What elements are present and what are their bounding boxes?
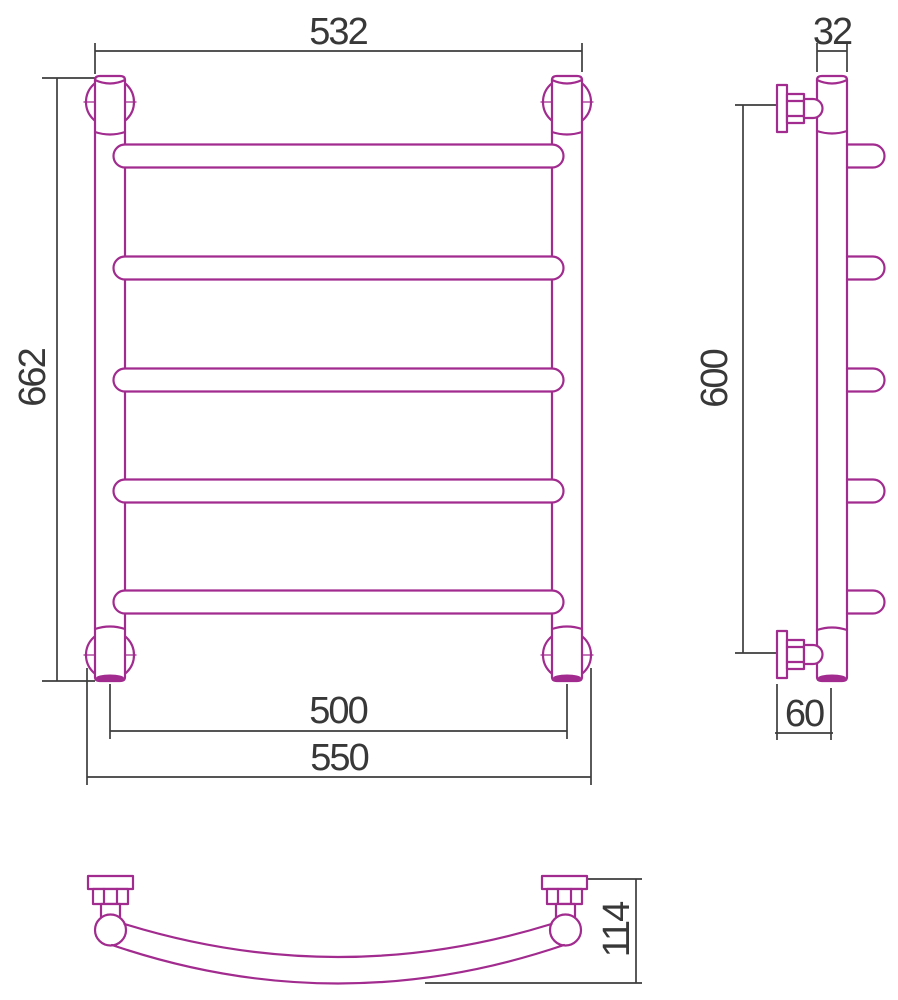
bar-stub (847, 369, 885, 392)
bar-stub (847, 145, 885, 168)
wall-flange (88, 876, 133, 889)
towel-rail-drawing: 532 662 500 550 32 600 60 114 (0, 0, 898, 1000)
dim-label-550: 550 (310, 737, 368, 779)
post-section-circle (550, 915, 581, 946)
bar-stub (847, 480, 885, 503)
dim-label-60: 60 (785, 693, 824, 735)
plan-curved-bar (112, 924, 564, 984)
dim-side-mount-spacing (735, 105, 779, 653)
rail-bar (114, 369, 564, 392)
post-bottom-cap (96, 675, 124, 682)
dim-label-600: 600 (694, 349, 736, 407)
side-tube (817, 76, 847, 682)
dim-label-532: 532 (309, 11, 367, 53)
dim-label-500: 500 (309, 690, 367, 732)
rail-bar (114, 591, 564, 614)
side-bottom-bracket (777, 631, 823, 678)
bracket-stem (804, 645, 823, 664)
wall-flange (777, 85, 787, 132)
plan-left-mount (88, 876, 133, 946)
plan-right-mount (542, 876, 587, 946)
wall-flange (542, 876, 587, 889)
rail-bar (114, 257, 564, 280)
hex-nut (787, 640, 804, 669)
hex-nut (547, 889, 582, 904)
hex-nut (93, 889, 128, 904)
rail-bar (114, 145, 564, 168)
curved-bar-bottom-edge (112, 945, 564, 984)
bar-stub (847, 257, 885, 280)
tube-bottom-cap (818, 675, 846, 682)
post-bottom-cap (553, 675, 581, 682)
side-bar-stubs (847, 145, 885, 614)
dimension-lines (42, 43, 847, 983)
post-section-circle (95, 915, 126, 946)
side-top-bracket (777, 85, 823, 132)
front-view (84, 76, 593, 682)
curved-bar-top-edge (125, 924, 552, 957)
dim-label-32: 32 (813, 11, 852, 53)
rail-bar (114, 480, 564, 503)
technical-drawing-canvas: 532 662 500 550 32 600 60 114 (0, 0, 898, 1000)
dim-label-114: 114 (596, 901, 638, 957)
dim-label-662: 662 (12, 348, 54, 406)
hex-nut (787, 94, 804, 123)
plan-view (88, 876, 587, 984)
front-rail-bars (114, 145, 564, 614)
side-view (777, 76, 885, 682)
wall-flange (777, 631, 787, 678)
bar-stub (847, 591, 885, 614)
bracket-stem (804, 99, 823, 118)
